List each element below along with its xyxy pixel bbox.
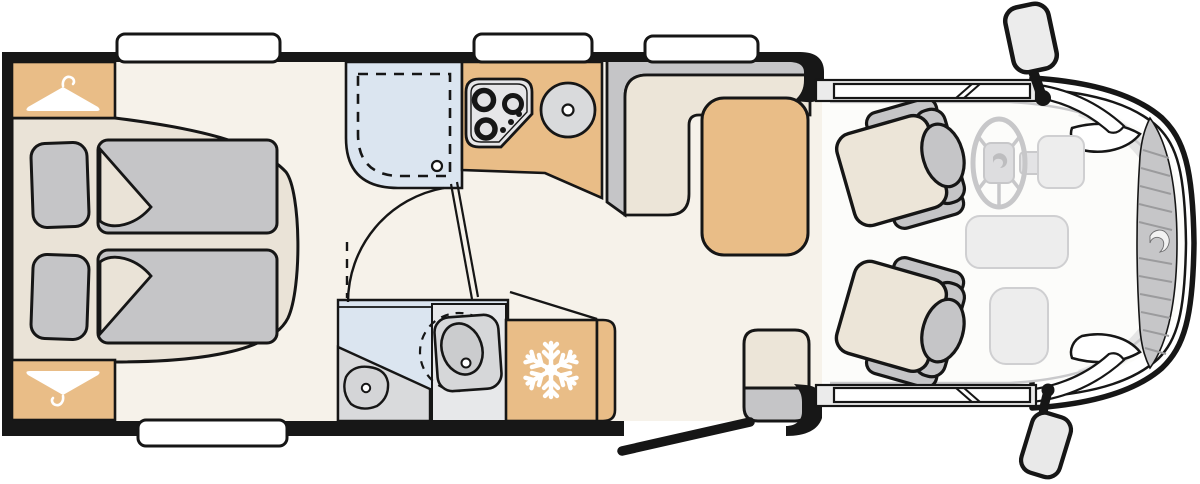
pillow-bottom [31,254,90,340]
dashboard-center-console [966,216,1068,268]
burner [505,96,522,113]
burner [475,91,494,110]
mirror-mount [1035,90,1051,106]
shower-drain [432,161,442,171]
pillow-top [31,142,90,228]
window-top-bedroom [117,34,280,62]
mirror-mount [1042,384,1055,397]
habitation-section [12,60,822,421]
window-top-kitchen [474,34,592,62]
shower-cubicle [346,62,462,188]
entrance-bench [744,330,809,421]
steering-hub [984,143,1014,183]
washbasin-drain [362,384,370,392]
dashboard-lower-console [990,288,1048,364]
cab-side-window-top [816,80,1036,101]
floor-plan-svg [0,0,1200,484]
window-top-dinette [645,36,758,62]
entrance-bench-cushion [744,330,809,388]
rear-wall [2,52,12,436]
burner [477,120,495,138]
dashboard-instruments [1038,136,1084,188]
floor-plan-stage [0,0,1200,484]
cab-section [822,78,1194,408]
bottom-wall [2,421,624,436]
washroom [338,300,508,421]
sink-drain [563,105,574,116]
window-bottom-bedroom [138,420,287,446]
cab-side-window-bottom [816,385,1036,406]
dinette-table [702,98,808,255]
entrance-bench-base [744,388,809,421]
toilet-drain [462,359,471,368]
fridge-side-panel [597,320,615,421]
refrigerator [506,320,615,421]
